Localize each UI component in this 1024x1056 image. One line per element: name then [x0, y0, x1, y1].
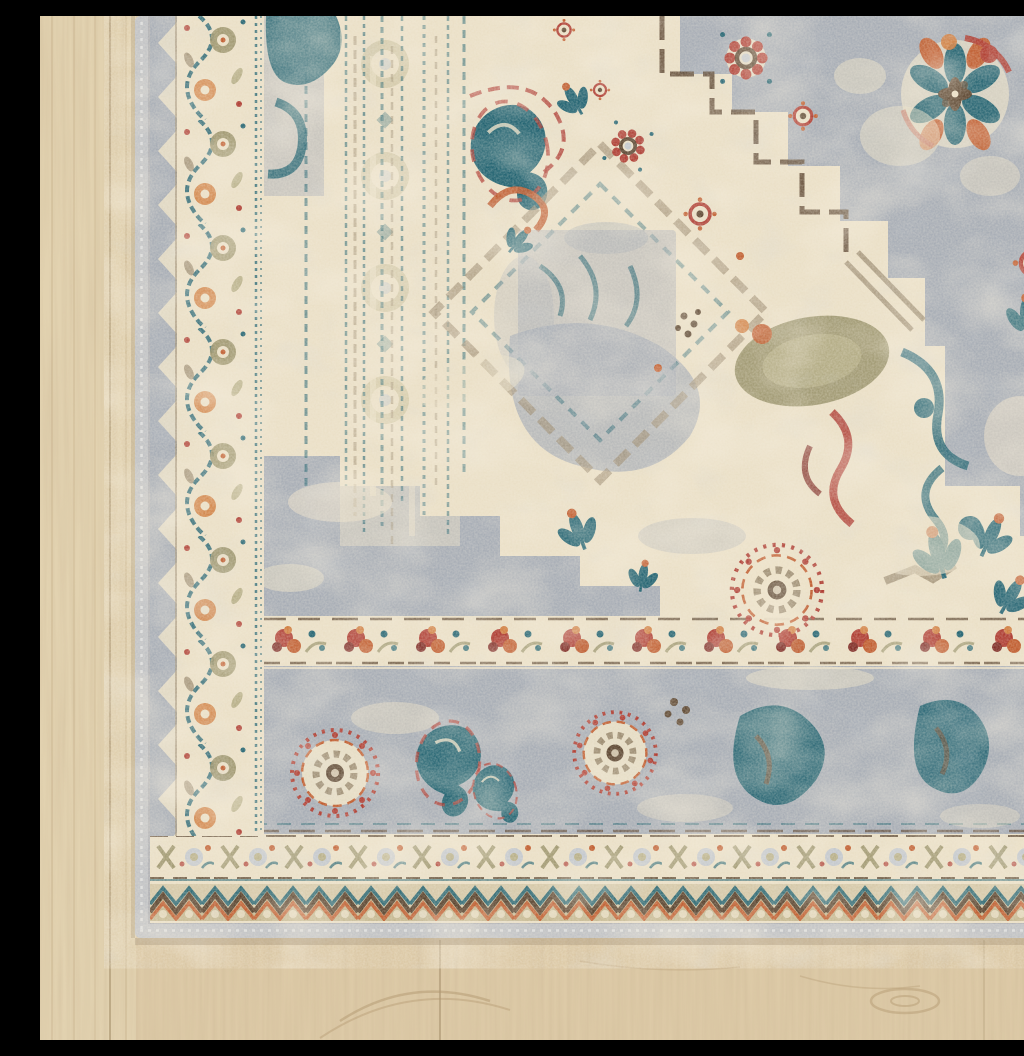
scene-canvas: Corner detail of a distressed vintage-st…	[40, 16, 1024, 1040]
area-rug	[131, 16, 1024, 945]
rug-on-floor-photo: Corner detail of a distressed vintage-st…	[40, 16, 1024, 1040]
rug-texture-overlays	[150, 16, 1024, 923]
